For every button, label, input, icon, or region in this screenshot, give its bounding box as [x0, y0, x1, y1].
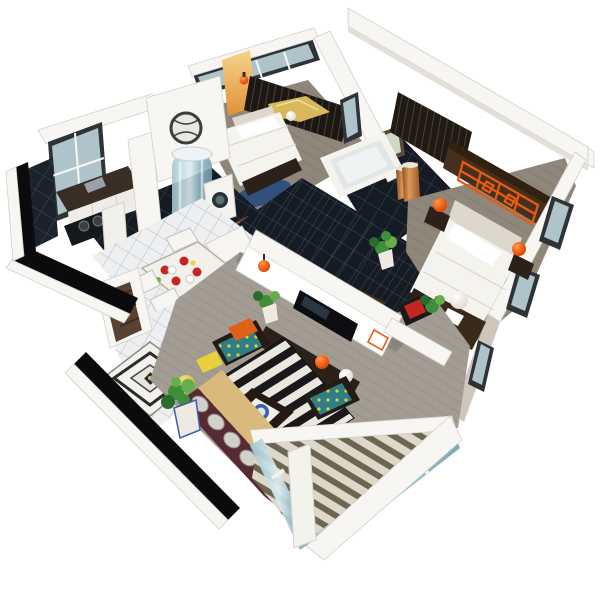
orange-lantern-icon [433, 198, 447, 212]
red-dish [193, 268, 202, 277]
plate [168, 266, 176, 274]
red-dish [180, 257, 189, 266]
hanging-lantern-icon [258, 260, 270, 272]
orange-lantern-icon [512, 242, 526, 256]
copper-floor-vase [402, 162, 420, 202]
red-dish [172, 277, 181, 286]
food [191, 261, 196, 266]
render-canvas: 3D isometric cutaway render of a furnish… [0, 0, 600, 600]
plate [186, 275, 194, 283]
floor-plan-render: 3D isometric cutaway render of a furnish… [0, 0, 600, 600]
orange-table-lamp-icon [315, 355, 329, 369]
bedside-lamp-icon [286, 111, 296, 121]
globe-lamp-icon [450, 291, 468, 309]
